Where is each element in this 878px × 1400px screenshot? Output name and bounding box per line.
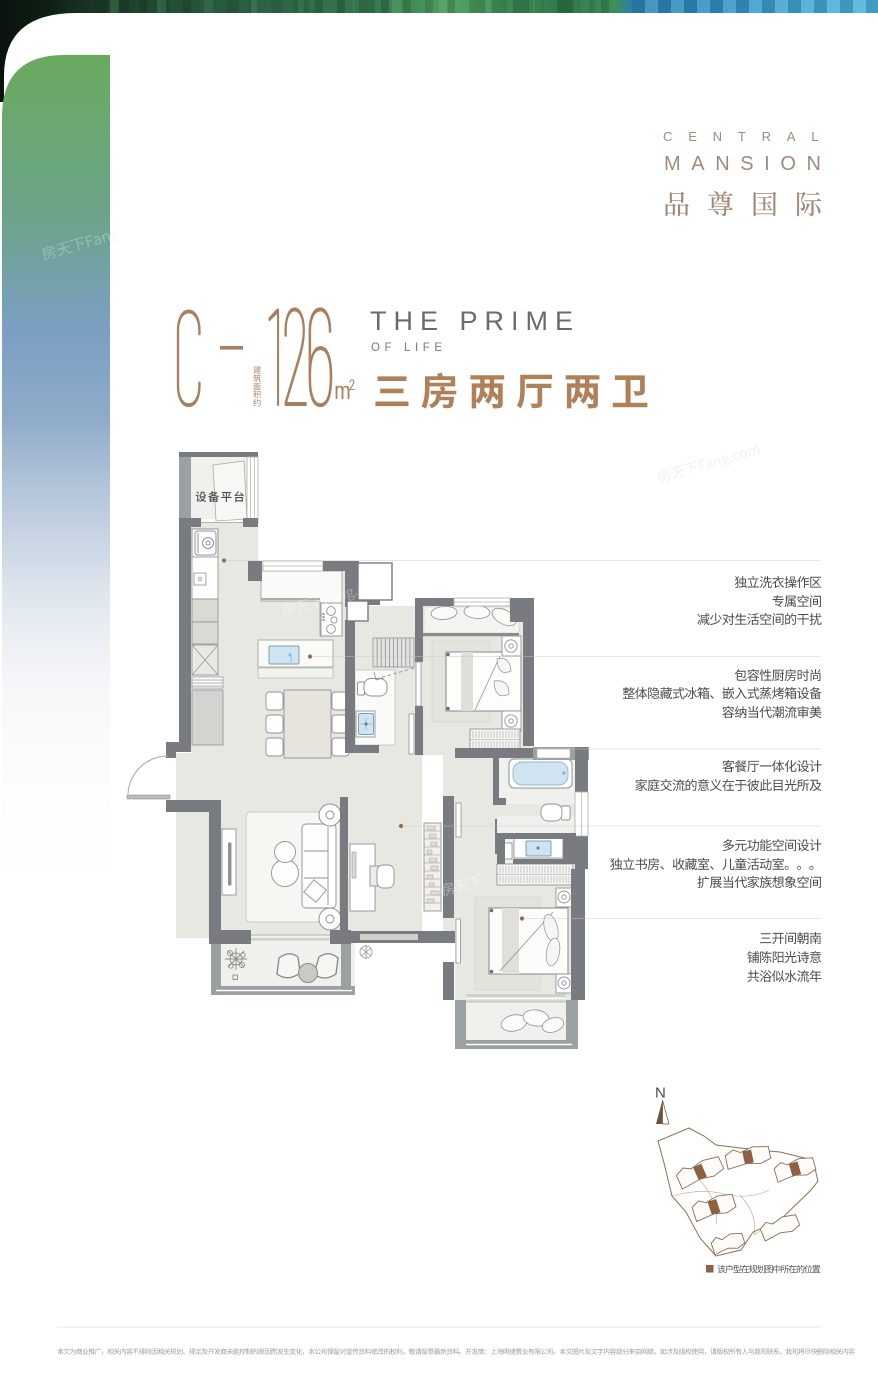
svg-text:N: N — [655, 1085, 666, 1102]
svg-text:THE PRIME: THE PRIME — [370, 306, 580, 336]
svg-text:MANSION: MANSION — [664, 153, 832, 175]
svg-text:CENTRAL: CENTRAL — [663, 129, 834, 144]
svg-text:OF LIFE: OF LIFE — [371, 342, 447, 354]
